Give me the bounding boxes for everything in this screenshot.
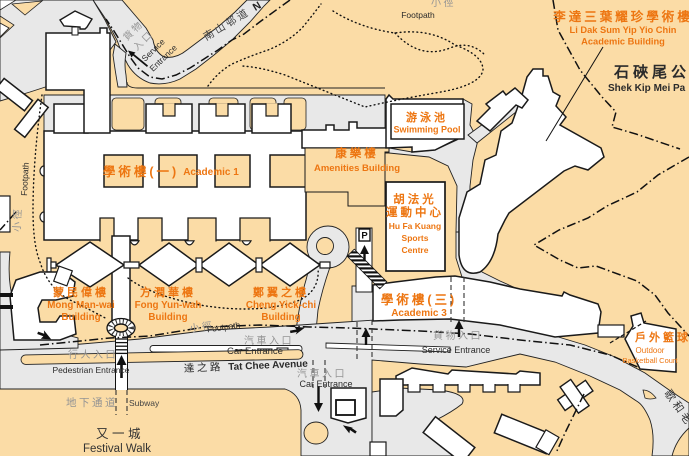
svg-text:Building: Building [61, 312, 100, 323]
svg-text:行人入口: 行人入口 [68, 348, 118, 361]
svg-text:Hu Fa Kuang: Hu Fa Kuang [389, 221, 441, 231]
svg-text:P: P [361, 231, 368, 242]
svg-text:Footpath: Footpath [401, 10, 435, 20]
svg-text:Basketball Court: Basketball Court [622, 356, 678, 365]
svg-text:Subway: Subway [129, 398, 160, 408]
svg-text:Building: Building [261, 312, 300, 323]
svg-text:石硤尾公園: 石硤尾公園 [613, 63, 689, 81]
svg-text:學術樓(三): 學術樓(三) [381, 292, 457, 307]
svg-text:Service Entrance: Service Entrance [422, 345, 491, 355]
svg-text:Centre: Centre [402, 245, 429, 255]
svg-text:Swimming Pool: Swimming Pool [393, 125, 460, 135]
svg-text:蒙民偉樓: 蒙民偉樓 [53, 285, 109, 299]
svg-text:Building: Building [148, 312, 187, 323]
svg-text:Footpath: Footpath [19, 162, 31, 196]
svg-text:運動中心: 運動中心 [386, 205, 444, 219]
svg-text:學術樓(一): 學術樓(一) [103, 164, 179, 179]
svg-text:Car Entrance: Car Entrance [299, 379, 352, 389]
svg-text:地下通道: 地下通道 [66, 396, 118, 409]
svg-text:Cheng Yick-chi: Cheng Yick-chi [246, 300, 317, 311]
svg-text:Car Entrance: Car Entrance [227, 346, 283, 357]
svg-text:又一城: 又一城 [96, 427, 144, 441]
svg-text:Li Dak Sum Yip Yio Chin: Li Dak Sum Yip Yio Chin [570, 25, 677, 35]
svg-text:游泳池: 游泳池 [406, 110, 448, 124]
svg-text:方潤華樓: 方潤華樓 [140, 285, 196, 299]
svg-text:Sports: Sports [402, 233, 429, 243]
svg-text:Academic 3: Academic 3 [391, 308, 447, 319]
svg-text:李達三葉耀珍學術樓: 李達三葉耀珍學術樓 [552, 9, 689, 24]
svg-text:Academic Building: Academic Building [581, 37, 665, 47]
svg-text:鄭翼之樓: 鄭翼之樓 [253, 285, 309, 299]
svg-text:Pedestrian Entrance: Pedestrian Entrance [52, 365, 129, 375]
svg-text:康樂樓: 康樂樓 [335, 146, 379, 160]
svg-text:Festival Walk: Festival Walk [83, 443, 151, 455]
svg-text:戶外籃球場: 戶外籃球場 [635, 330, 689, 344]
svg-text:胡法光: 胡法光 [393, 192, 437, 206]
svg-text:Outdoor: Outdoor [636, 346, 665, 355]
svg-text:Shek Kip Mei Pa: Shek Kip Mei Pa [608, 83, 686, 94]
svg-text:Fong Yun-wah: Fong Yun-wah [135, 300, 202, 311]
svg-text:Mong Man-wai: Mong Man-wai [47, 300, 115, 311]
svg-text:貨物入口: 貨物入口 [433, 329, 483, 342]
svg-text:Academic 1: Academic 1 [183, 167, 239, 178]
svg-text:Amenities Building: Amenities Building [314, 163, 400, 174]
svg-text:小徑: 小徑 [431, 0, 456, 9]
svg-text:小徑: 小徑 [10, 207, 24, 233]
